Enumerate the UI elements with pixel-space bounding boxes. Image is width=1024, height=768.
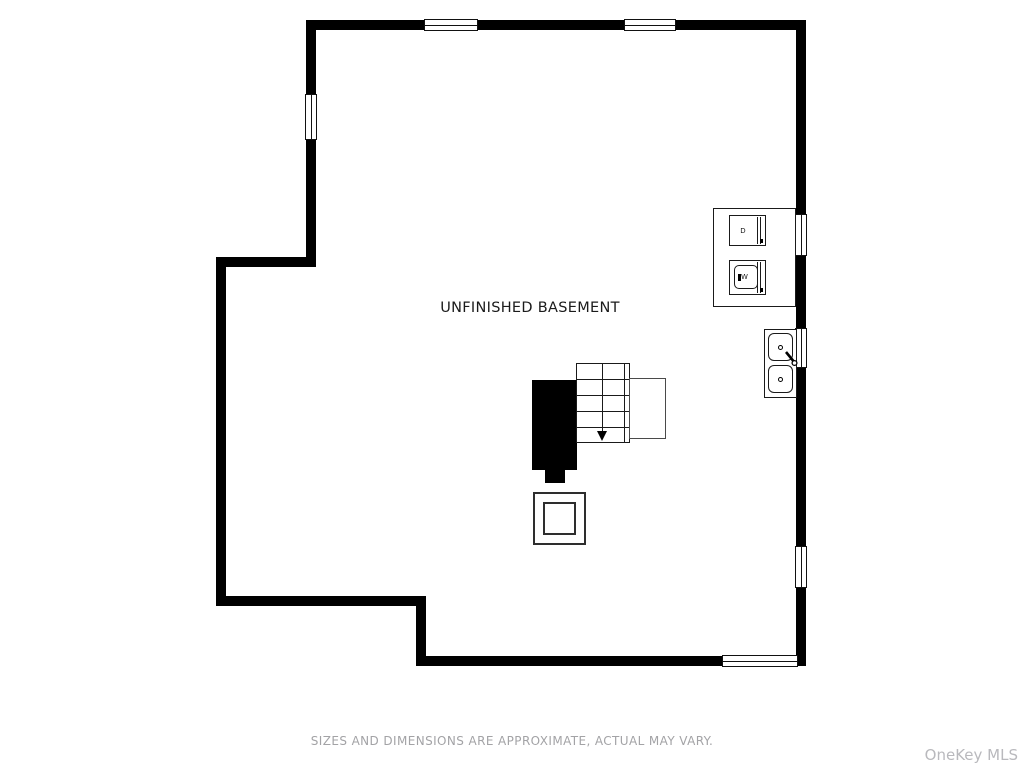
stair-tread-line [577,427,629,428]
sink-faucet-icon [765,330,798,399]
washer-symbol: W [729,260,766,295]
utility-sink-symbol [764,329,797,398]
washer-label: W [735,266,748,288]
wall-left-jog [216,257,316,267]
dryer-label: D [730,216,756,245]
wall-top [306,20,806,30]
stairs-down-arrow-icon [597,431,607,441]
chimney-mass [532,380,577,470]
window-top-1 [424,19,478,31]
support-post-inner [543,502,576,535]
floor-plan-canvas: D W UNFINISHED [0,0,1024,768]
washer-hinge-dot [760,288,763,292]
window-left [305,94,317,140]
stair-tread-line [577,379,629,380]
stair-tread-line [577,411,629,412]
stair-landing [629,378,666,439]
stair-tread-line [577,395,629,396]
mls-watermark: OneKey MLS [925,746,1018,764]
wall-bottom-left [216,596,426,606]
window-top-2 [624,19,676,31]
room-label: UNFINISHED BASEMENT [330,300,730,316]
dryer-hinge-dot [760,239,763,243]
staircase-symbol [576,363,630,443]
window-right-3 [795,546,807,588]
wall-left-lower [216,257,226,606]
window-right-1 [795,214,807,256]
dryer-symbol: D [729,215,766,246]
stair-direction-line [602,364,603,432]
support-post-symbol [533,492,586,545]
window-bottom [722,655,798,667]
washer-drum: W [734,265,758,289]
chimney-mass-tab [545,469,565,483]
disclaimer-text: SIZES AND DIMENSIONS ARE APPROXIMATE, AC… [0,734,1024,748]
wall-left-upper [306,20,316,267]
stair-stringer-line [624,364,625,442]
